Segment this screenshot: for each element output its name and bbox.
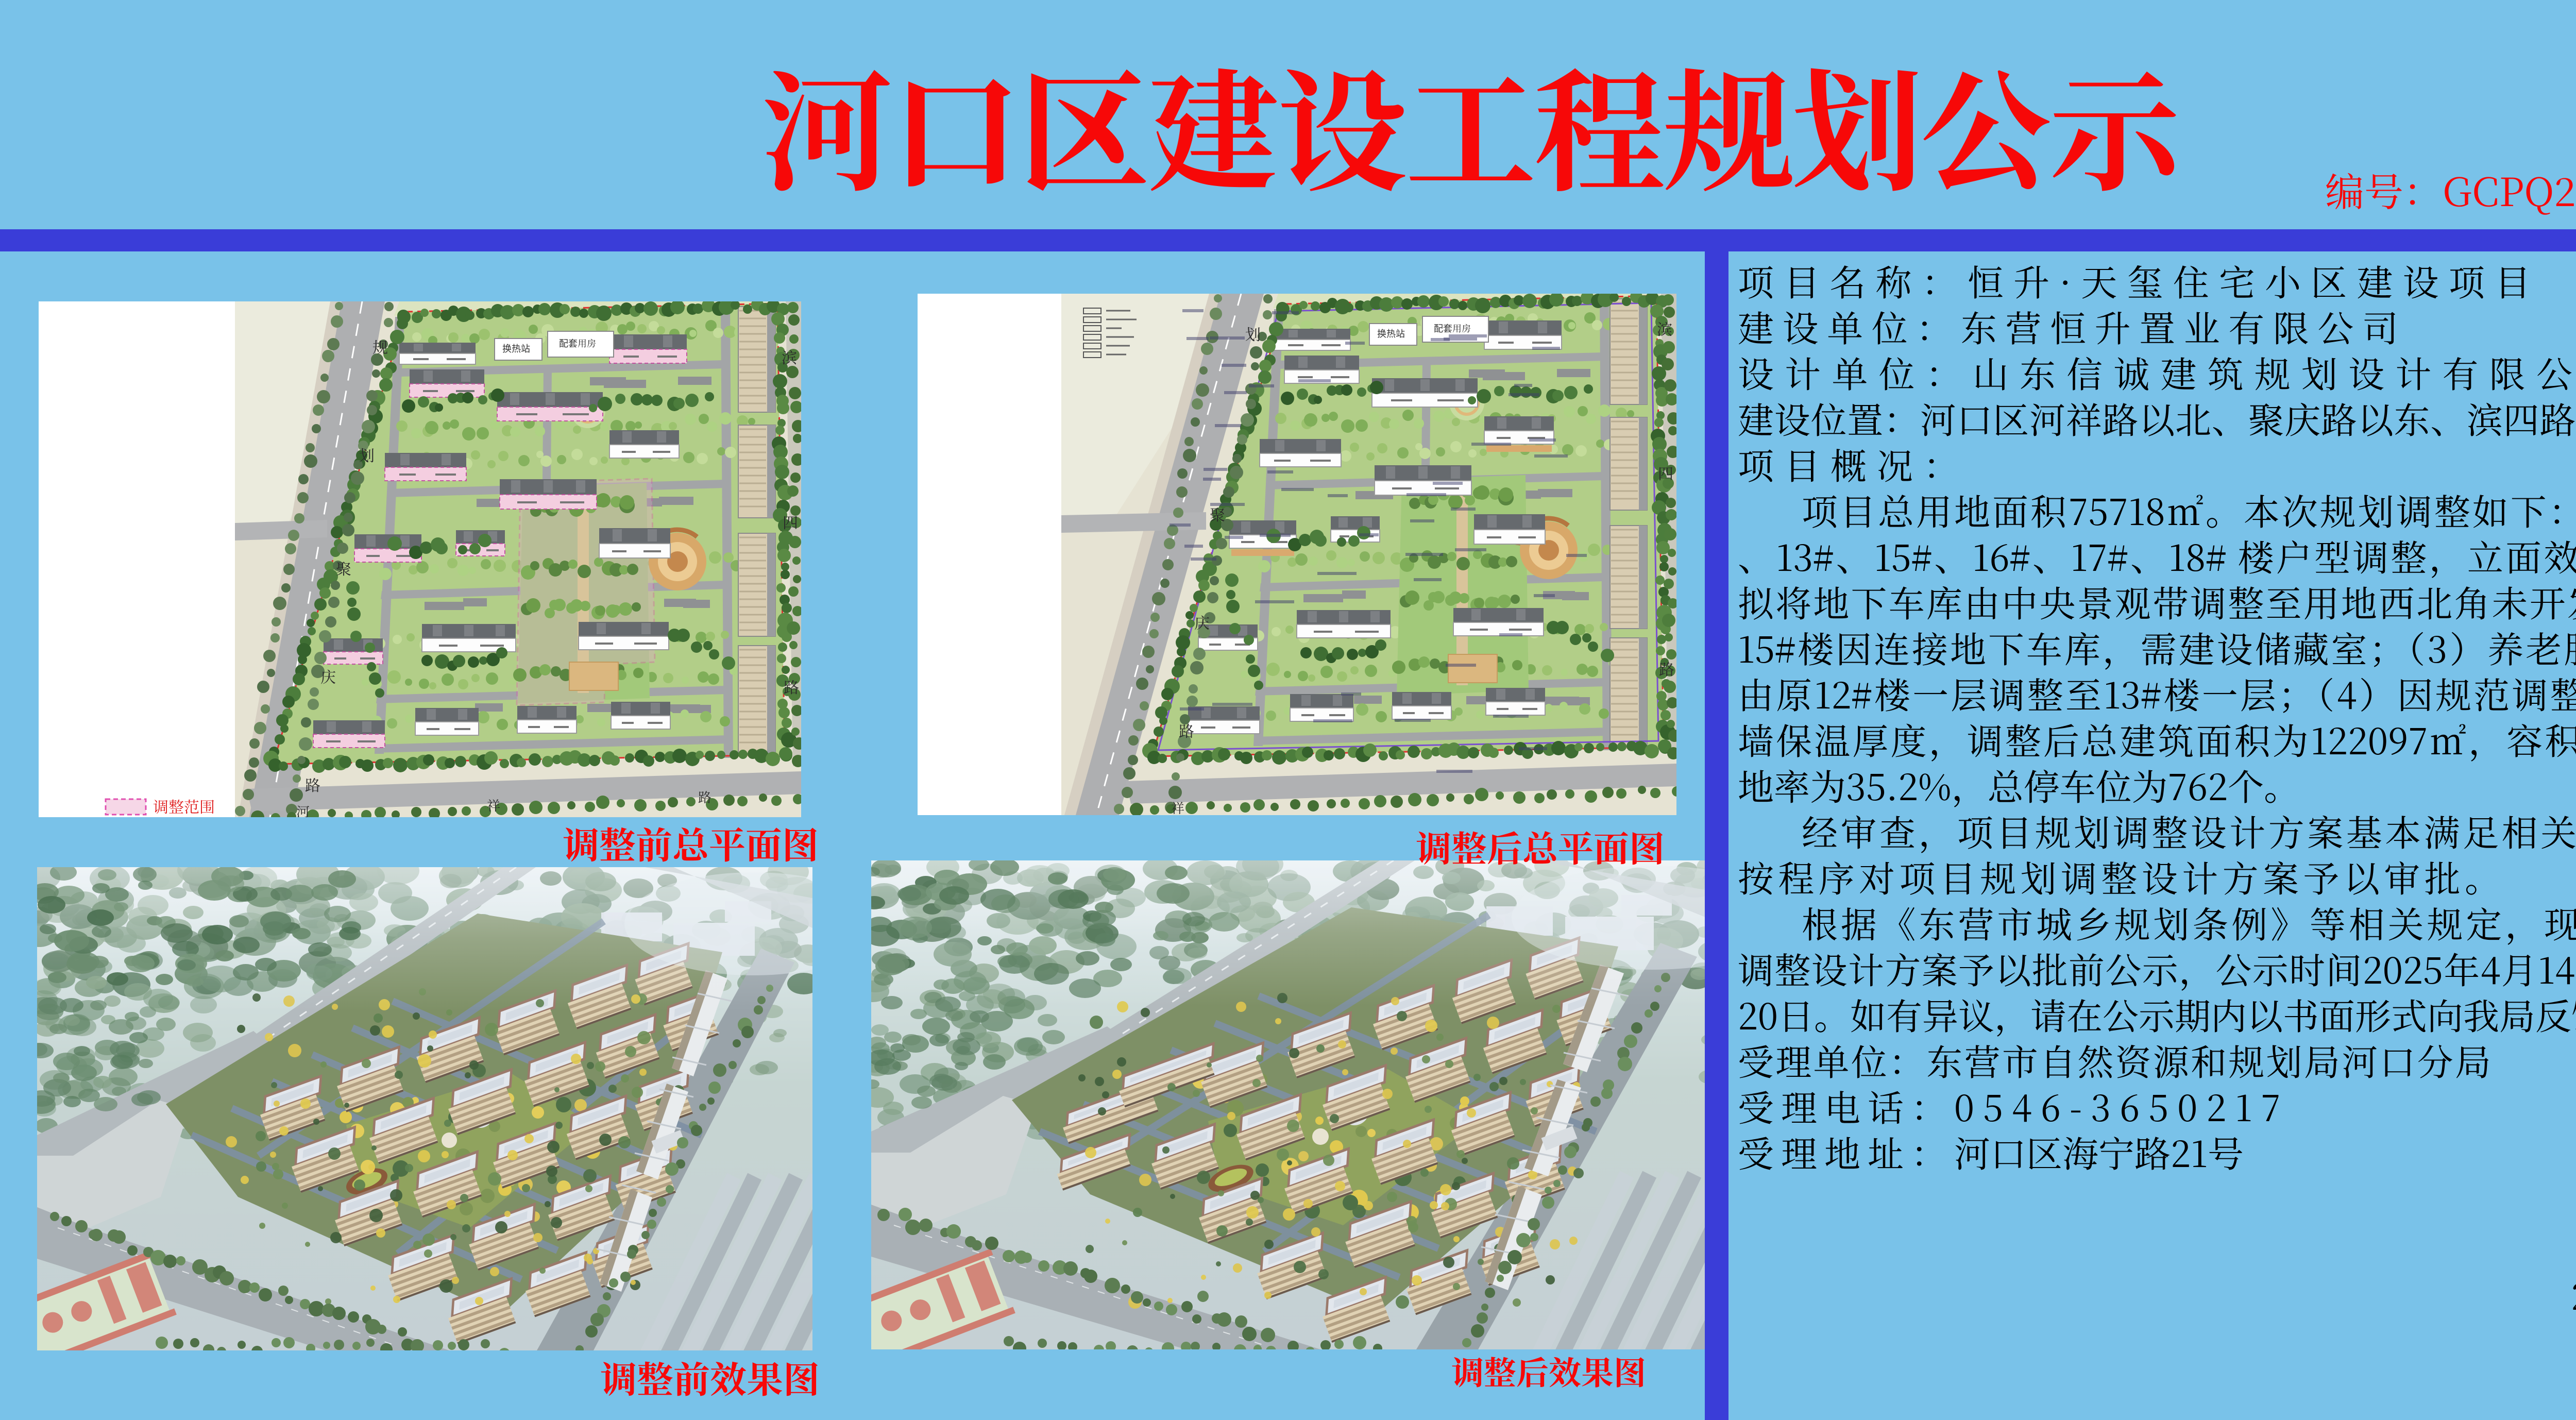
svg-text:祥: 祥 (487, 796, 500, 815)
svg-text:调整范围: 调整范围 (153, 794, 215, 817)
svg-text:规: 规 (372, 335, 388, 358)
svg-text:四: 四 (1658, 461, 1673, 484)
svg-text:换热站: 换热站 (1377, 327, 1405, 340)
svg-text:换热站: 换热站 (502, 342, 530, 355)
svg-text:滨: 滨 (782, 345, 797, 368)
svg-text:配套用房: 配套用房 (559, 336, 596, 350)
svg-text:四: 四 (783, 510, 798, 533)
svg-text:划: 划 (1245, 322, 1261, 345)
svg-text:路: 路 (1179, 719, 1194, 741)
svg-text:河: 河 (296, 802, 310, 817)
svg-text:划: 划 (359, 443, 375, 466)
svg-text:庆: 庆 (320, 665, 336, 687)
svg-text:路: 路 (698, 787, 711, 806)
svg-text:祥: 祥 (1171, 798, 1184, 815)
svg-text:配套用房: 配套用房 (1434, 322, 1471, 335)
svg-text:路: 路 (1659, 657, 1674, 680)
svg-text:路: 路 (784, 675, 799, 698)
svg-text:滨: 滨 (1657, 317, 1672, 340)
svg-text:聚: 聚 (336, 556, 351, 579)
svg-text:路: 路 (305, 773, 320, 796)
svg-text:庆: 庆 (1194, 611, 1210, 633)
